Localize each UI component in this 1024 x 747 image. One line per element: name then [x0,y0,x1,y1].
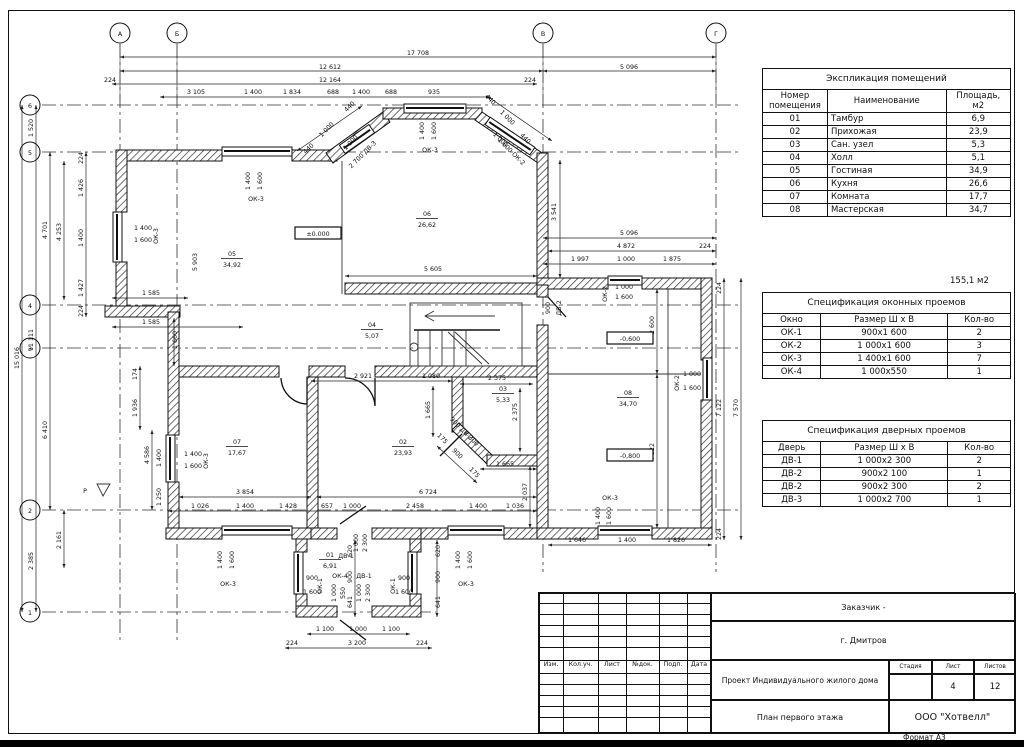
plan-label: 5,07 [365,333,379,340]
plan-label: 900 [435,571,442,583]
total-area: 155,1 м2 [950,276,989,286]
cell: 05 [763,165,828,178]
cell: Прихожая [827,126,946,139]
plan-label: 440 [343,100,356,113]
stage-value [889,674,932,700]
cell: ОК-4 [763,366,821,379]
plan-label: 04 [368,322,376,329]
plan-label: 1 400 [455,551,462,569]
plan-label: 05 [228,251,236,258]
table-row: ОК-1900х1 6002 [763,327,1011,340]
cell: 1 000х550 [820,366,948,379]
cell: ДВ-2 [763,468,821,481]
stage-header: Стадия [889,660,932,674]
plan-label: 1 100 [382,626,400,633]
plan-label: 620 [435,545,442,557]
plan-label: 224 [78,305,85,317]
rev-col-header: Кол.уч. [563,661,598,673]
table-header-row: Окно Размер Ш х В Кол-во [763,314,1011,327]
rev-col-header: Лист [598,661,626,673]
plan-label: 03 [499,386,507,393]
window-ok3 [166,435,175,482]
plan-label: ОК-3 [220,581,236,588]
cell: ОК-3 [763,353,821,366]
plan-label: 1 080 [422,373,440,380]
plan-label: 5 096 [620,64,638,71]
plan-label: 1 875 [663,256,681,263]
plan-label: ОК-1 [317,578,324,594]
plan-label: 900 [398,575,410,582]
cell: 5,3 [946,139,1010,152]
plan-label: 1 400 [245,172,252,190]
window-ok3 [222,526,292,535]
cell: 1 [948,366,1011,379]
cell: Сан. узел [827,139,946,152]
plan-label: 2 037 [522,483,529,501]
plan-label: -0,600 [620,336,640,343]
plan-label: 12 612 [319,64,341,71]
plan-label: 7 122 [716,399,723,417]
rev-col-header: Изм. [539,661,563,673]
cell: 7 [948,353,1011,366]
cell: 1 000х1 600 [820,340,948,353]
plan-label: 4 586 [144,446,151,464]
plan-label: ОК-1 [390,578,397,594]
cell: 26,6 [946,178,1010,191]
plan-label: 5,33 [496,397,510,404]
plan-label: 4 872 [617,243,635,250]
plan-label: 1 000 [353,534,360,552]
plan-label: 1 428 [279,503,297,510]
plan-label: 175 [467,466,480,479]
windows-spec-table: Спецификация оконных проемов Окно Размер… [762,292,1011,379]
doors-spec-table: Спецификация дверных проемов Дверь Разме… [762,420,1011,507]
plan-label: В [541,31,545,38]
window-ok1 [294,552,303,594]
plan-label: 4 [28,303,32,310]
plan-label: 34,92 [223,262,241,269]
plan-label: 6,91 [323,563,337,570]
project-name-cell: Проект Индивидуального жилого дома [711,660,889,700]
rev-col-header: №док. [626,661,659,673]
page-edge [0,740,1024,747]
cell: 1 [948,494,1011,507]
plan-label: ОК-3 [203,453,210,469]
cell: 2 [948,327,1011,340]
plan-label: 174 [132,368,139,380]
table-title-row: Спецификация дверных проемов [763,421,1011,442]
plan-label: 641 [347,596,354,608]
table-title: Экспликация помещений [763,69,1011,90]
plan-label: 550 [340,587,347,599]
plan-label: А [118,31,123,38]
plan-label: 08 [624,390,632,397]
drawing-sheet: АБВГ65432117 70812 6125 09622412 1642243… [0,0,1024,747]
col-header: Площадь, м2 [946,90,1010,113]
plan-label: 1 400 [469,503,487,510]
plan-label: ДВ-2 [556,300,563,316]
col-header: Окно [763,314,821,327]
table-row: ДВ-31 000х2 7001 [763,494,1011,507]
windows [113,104,712,594]
plan-label: 1 646 [568,537,586,544]
plan-label: 1 400 [419,122,426,140]
cell: 900х1 600 [820,327,948,340]
rev-col-header: Дата [687,661,711,673]
plan-label: 1 400 [184,451,202,458]
plan-label: 1 036 [506,503,524,510]
cell: 1 000х2 700 [821,494,948,507]
plan-label: 224 [716,528,723,540]
plan-label: 3 200 [348,640,366,647]
plan-label: 1 400 [134,225,152,232]
plan-label: 1 600 [229,551,236,569]
plan-label: 1 600 [395,589,413,596]
window-ok3 [222,147,292,156]
sheets-header: Листов [974,660,1016,674]
cell: 900х2 100 [821,468,948,481]
plan-label: 1 400 [156,449,163,467]
plan-label: ОК-3 [422,147,438,154]
table-row: 01Тамбур6,9 [763,113,1011,126]
col-header: Кол-во [948,442,1011,455]
plan-label: 02 [399,439,407,446]
stairs [410,303,522,366]
cell: ОК-2 [763,340,821,353]
window-ok1 [408,552,417,594]
plan-label: 17 708 [407,50,429,57]
plan-label: 5 903 [192,253,199,271]
plan-label: 1 585 [142,319,160,326]
cell: 17,7 [946,191,1010,204]
rev-col-header: Подп. [659,661,687,673]
plan-label: 1 600 [467,551,474,569]
table-row: ДВ-2900х2 1001 [763,468,1011,481]
cell: Гостиная [827,165,946,178]
sheet-header: Лист [932,660,974,674]
cell: 34,7 [946,204,1010,217]
window-ok3 [598,526,652,535]
cell: 1 000х2 300 [821,455,948,468]
plan-label: 224 [716,282,723,294]
plan-label: 5 [28,150,32,157]
plan-label: 23,93 [394,450,412,457]
plan-label: 2 385 [28,552,35,570]
col-header: Размер Ш х В [820,314,948,327]
plan-label: 3 541 [551,203,558,221]
cell: ОК-1 [763,327,821,340]
plan-label: 224 [416,640,428,647]
plan-label: 2 375 [512,403,519,421]
plan-label: 1 427 [78,279,85,297]
plan-label: 2 375 [488,375,506,382]
plan-label: 7 570 [733,399,740,417]
cell: 1 400х1 600 [820,353,948,366]
cell: 08 [763,204,828,217]
plan-label: 1 665 [425,401,432,419]
window-ok2 [703,358,712,400]
title-block: Изм. Кол.уч. Лист №док. Подп. Дата Заказ… [538,592,1015,733]
plan-label: ОК-3 [248,196,264,203]
plan-label: 1 400 [78,229,85,247]
plan-label: 1 000 [349,626,367,633]
plan-label: 1 400 [236,503,254,510]
plan-label: 06 [423,211,431,218]
plan-label: 6 410 [42,421,49,439]
plan-label: 1 600 [257,172,264,190]
plan-label: ОК-3 [153,228,160,244]
plan-label: 1 400 [352,89,370,96]
plan-label: 4 701 [42,221,49,239]
room-explication-table: Экспликация помещений Номер помещения На… [762,68,1011,217]
cell: ДВ-3 [763,494,821,507]
plan-label: 175 [435,432,448,445]
plan-label: 1 660 [172,331,179,349]
plan-label: 5 605 [424,266,442,273]
plan-label: 224 [524,77,536,84]
cell: 07 [763,191,828,204]
plan-label: 1 400 [595,507,602,525]
table-header-row: Номер помещения Наименование Площадь, м2 [763,90,1011,113]
cell: Мастерская [827,204,946,217]
plan-label: 1 100 [316,626,334,633]
cell: ДВ-1 [763,455,821,468]
plan-label: 688 [385,89,397,96]
table-row: 03Сан. узел5,3 [763,139,1011,152]
plan-label: 657 [321,503,333,510]
company-cell: ООО "Хотвелл" [889,700,1016,734]
plan-label: 1 585 [142,290,160,297]
dimension-lines [22,44,741,648]
table-row: ОК-31 400х1 6007 [763,353,1011,366]
plan-label: 1 000 [683,371,701,378]
plan-label: 3 105 [187,89,205,96]
cell: 06 [763,178,828,191]
plan-label: 2 458 [406,503,424,510]
plan-label: 224 [286,640,298,647]
window-ok3 [404,104,466,113]
plan-label: 224 [104,77,116,84]
table-row: ДВ-2900х2 3002 [763,481,1011,494]
plan-label: 224 [78,152,85,164]
col-header: Кол-во [948,314,1011,327]
cell: 900х2 300 [821,481,948,494]
cell: Тамбур [827,113,946,126]
plan-label: 4 253 [56,223,63,241]
plan-label: 07 [233,439,241,446]
plan-label: 01 [326,552,334,559]
plan-label: Р [83,488,87,495]
plan-label: ОК-4 [332,573,348,580]
plan-label: 6 [28,103,32,110]
plan-label: 1 997 [571,256,589,263]
plan-label: 2 [28,508,32,515]
customer-cell: Заказчик - [711,593,1016,621]
table-header-row: Дверь Размер Ш х В Кол-во [763,442,1011,455]
plan-label: 900 [347,571,354,583]
cell: 04 [763,152,828,165]
plan-label: Г [714,31,718,38]
table-row: 07Комната17,7 [763,191,1011,204]
plan-label: 1 000 [318,121,336,139]
table-row: 02Прихожая23,9 [763,126,1011,139]
window-ok3 [113,212,122,262]
plan-label: -0,800 [620,453,640,460]
plan-label: 2 300 [365,584,372,602]
plan-label: ОК-2 [674,375,681,391]
plan-label: 2 600 [649,316,656,334]
plan-label: 1 936 [132,399,139,417]
cell: 34,9 [946,165,1010,178]
plan-label: 2 921 [354,373,372,380]
sheet-title-cell: План первого этажа [711,700,889,734]
plan-label: ОК-3 [458,581,474,588]
table-row: 04Холл5,1 [763,152,1011,165]
cell: 6,9 [946,113,1010,126]
plan-label: ДВ-1 [338,553,354,560]
table-row: 08Мастерская34,7 [763,204,1011,217]
plan-label: 1 600 [615,294,633,301]
cell: 3 [948,340,1011,353]
plan-label: 26,62 [418,222,436,229]
col-header: Наименование [827,90,946,113]
sheets-total: 12 [974,674,1016,700]
cell: Комната [827,191,946,204]
plan-label: 1 826 [667,537,685,544]
plan-label: Б [175,31,179,38]
plan-label: 1 026 [191,503,209,510]
plan-label: ±0.000 [306,231,329,238]
table-row: ОК-21 000х1 6003 [763,340,1011,353]
plan-label: 688 [327,89,339,96]
plan-label: 11 111 [28,329,35,351]
plan-label: 1 600 [606,507,613,525]
plan-label: 224 [699,243,711,250]
plan-label: 2 161 [56,531,63,549]
cell: 2 [948,481,1011,494]
plan-label: 1 834 [283,89,301,96]
section-marker [97,484,110,496]
sheet-number: 4 [932,674,974,700]
table-title-row: Спецификация оконных проемов [763,293,1011,314]
plan-label: ОК-3 [602,495,618,502]
plan-label: 12 164 [319,77,341,84]
plan-label: 1 000 [343,503,361,510]
plan-label: 900 [450,447,463,460]
table-title-row: Экспликация помещений [763,69,1011,90]
table-row: ДВ-11 000х2 3002 [763,455,1011,468]
plan-label: 1 600 [683,385,701,392]
plan-label: 1 250 [156,488,163,506]
plan-label: 1 520 [28,119,35,137]
plan-label: 1 000 [617,256,635,263]
plan-label: 1 000 [331,584,338,602]
plan-label: 1 400 [244,89,262,96]
cell: ДВ-2 [763,481,821,494]
plan-label: 1 600 [134,237,152,244]
plan-label: 1 000 [615,284,633,291]
plan-label: 1 [28,610,32,617]
plan-label: 641 [435,596,442,608]
plan-label: 1 000 [356,584,363,602]
plan-label: 1 426 [78,179,85,197]
plan-label: 3 854 [236,489,254,496]
col-header: Размер Ш х В [821,442,948,455]
cell: 02 [763,126,828,139]
plan-label: 2 300 [362,534,369,552]
plan-label: 900 [545,302,552,314]
plan-label: ДВ-1 [356,573,372,580]
cell: 5,1 [946,152,1010,165]
cell: Холл [827,152,946,165]
city-cell: г. Дмитров [711,621,1016,660]
window-ok3 [448,526,504,535]
table-row: ОК-41 000х5501 [763,366,1011,379]
col-header: Номер помещения [763,90,828,113]
table-title: Спецификация дверных проемов [763,421,1011,442]
cell: 2 [948,455,1011,468]
plan-label: 1 400 [618,537,636,544]
cell: 23,9 [946,126,1010,139]
cell: 01 [763,113,828,126]
table-row: 06Кухня26,6 [763,178,1011,191]
plan-label: 935 [428,89,440,96]
plan-label: 1 600 [431,122,438,140]
plan-label: ОК-2 [602,286,609,302]
plan-label: 6 724 [419,489,437,496]
plan-label: 15 016 [14,347,21,369]
plan-label: 5 096 [620,230,638,237]
plan-label: 1 400 [217,551,224,569]
plan-label: 1 600 [184,463,202,470]
table-title: Спецификация оконных проемов [763,293,1011,314]
plan-label: 17,67 [228,450,246,457]
plan-label: 34,70 [619,401,637,408]
table-row: 05Гостиная34,9 [763,165,1011,178]
col-header: Дверь [763,442,821,455]
plan-label: 1 665 [496,461,514,468]
cell: 1 [948,468,1011,481]
cell: Кухня [827,178,946,191]
cell: 03 [763,139,828,152]
